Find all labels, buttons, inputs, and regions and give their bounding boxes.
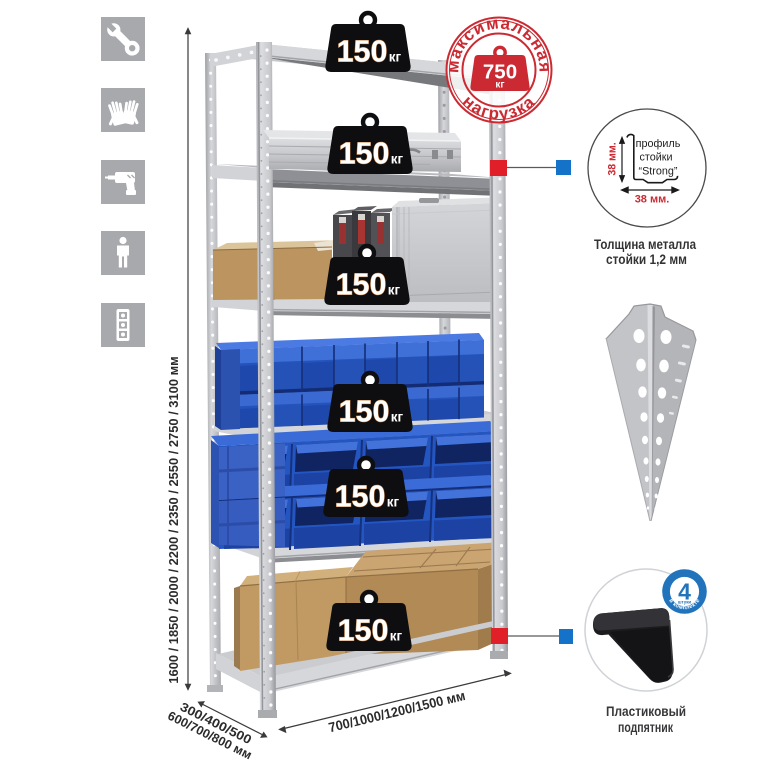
svg-text:150: 150 (337, 35, 388, 69)
svg-text:профиль: профиль (636, 138, 681, 150)
svg-text:стойки 1,2 мм: стойки 1,2 мм (606, 252, 687, 267)
svg-text:кг: кг (388, 283, 401, 298)
svg-text:150: 150 (338, 614, 389, 648)
svg-text:150: 150 (335, 480, 386, 514)
svg-text:1600 / 1850 / 2000 / 2200 / 23: 1600 / 1850 / 2000 / 2200 / 2350 / 2550 … (166, 356, 181, 683)
svg-text:Пластиковый: Пластиковый (606, 704, 686, 720)
svg-text:кг: кг (495, 80, 504, 91)
svg-text:38 мм.: 38 мм. (635, 194, 670, 206)
svg-text:стойки: стойки (639, 152, 672, 164)
svg-text:кг: кг (391, 152, 404, 167)
svg-text:“Strong”: “Strong” (638, 166, 677, 178)
svg-text:штуки: штуки (678, 600, 692, 605)
svg-text:кг: кг (391, 410, 404, 425)
svg-text:кг: кг (389, 50, 402, 65)
svg-text:Толщина металла: Толщина металла (594, 237, 696, 252)
svg-text:подпятник: подпятник (618, 720, 674, 736)
svg-text:150: 150 (339, 137, 390, 171)
svg-text:38 мм.: 38 мм. (607, 142, 619, 175)
svg-text:кг: кг (387, 495, 400, 510)
svg-text:кг: кг (390, 629, 403, 644)
svg-text:150: 150 (336, 268, 387, 302)
svg-text:150: 150 (339, 395, 390, 429)
